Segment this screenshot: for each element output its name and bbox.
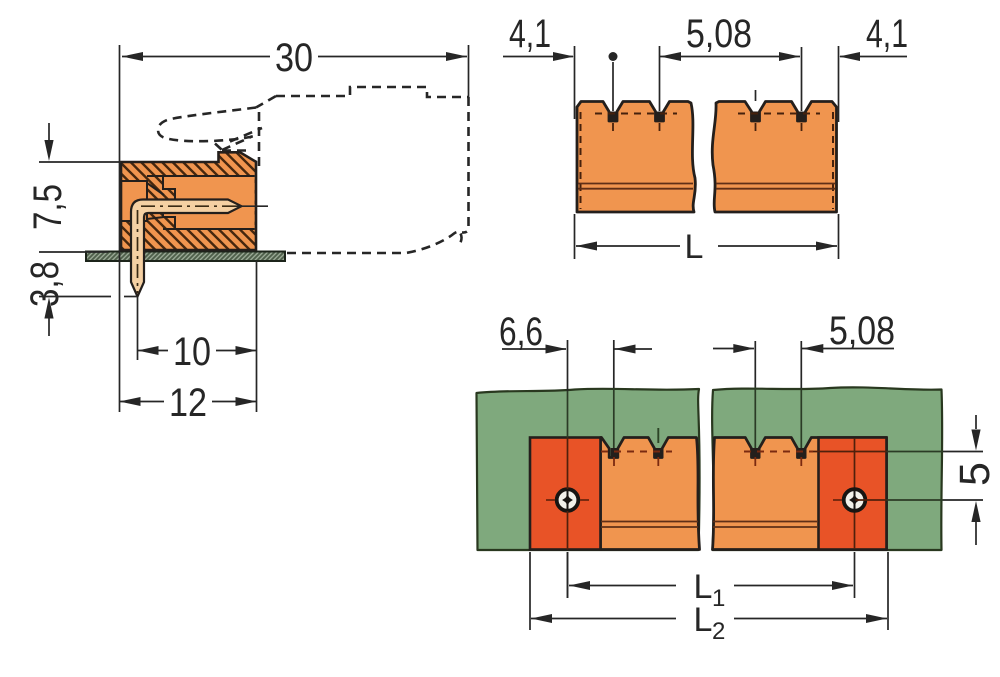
svg-text:6,6: 6,6 xyxy=(499,310,543,354)
svg-text:5: 5 xyxy=(951,462,999,486)
svg-text:12: 12 xyxy=(169,381,207,425)
svg-text:4,1: 4,1 xyxy=(866,12,908,56)
svg-text:7,5: 7,5 xyxy=(26,184,70,230)
svg-text:L: L xyxy=(685,228,704,266)
svg-text:10: 10 xyxy=(173,330,211,374)
svg-text:4,1: 4,1 xyxy=(509,12,551,56)
svg-text:L: L xyxy=(694,601,713,639)
svg-text:5,08: 5,08 xyxy=(686,12,752,56)
svg-text:1: 1 xyxy=(712,585,725,612)
svg-text:2: 2 xyxy=(712,618,725,645)
svg-text:30: 30 xyxy=(275,36,313,80)
svg-text:5,08: 5,08 xyxy=(829,309,895,353)
svg-text:3,8: 3,8 xyxy=(23,261,67,307)
